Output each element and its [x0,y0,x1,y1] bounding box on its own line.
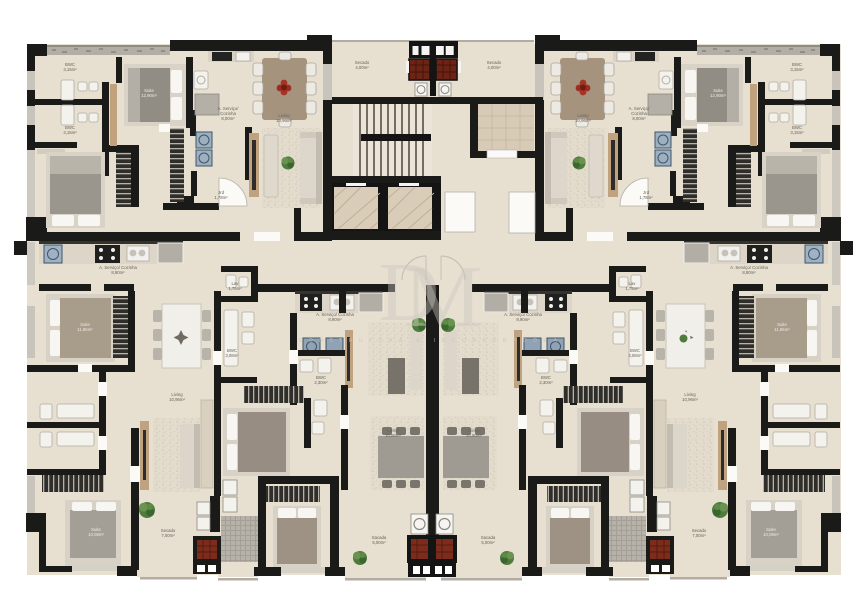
svg-text:11,96m²: 11,96m² [774,327,790,332]
svg-text:10,96m²: 10,96m² [276,118,292,123]
svg-text:5,00m²: 5,00m² [372,540,386,545]
svg-text:3,08m²: 3,08m² [628,353,642,358]
svg-text:10,96m²: 10,96m² [169,397,185,402]
svg-text:4,00m²: 4,00m² [355,65,369,70]
svg-text:10,96m²: 10,96m² [682,397,698,402]
svg-text:12,90m²: 12,90m² [710,93,726,98]
svg-text:8,90m²: 8,90m² [111,270,125,275]
svg-text:3,15m²: 3,15m² [790,130,804,135]
svg-text:3,08m²: 3,08m² [225,353,239,358]
svg-text:8,00m²: 8,00m² [632,116,646,121]
svg-text:10,08m²: 10,08m² [763,532,779,537]
svg-text:M: M [404,249,482,346]
svg-text:5,00m²: 5,00m² [481,540,495,545]
svg-text:8,90m²: 8,90m² [516,317,530,322]
svg-text:10,08m²: 10,08m² [88,532,104,537]
svg-text:8,00m²: 8,00m² [221,116,235,121]
svg-text:10,80m²: 10,80m² [385,433,401,438]
svg-text:10,80m²: 10,80m² [466,433,482,438]
svg-text:4,00m²: 4,00m² [487,65,501,70]
svg-text:12,90m²: 12,90m² [141,93,157,98]
svg-text:2,30m²: 2,30m² [314,380,328,385]
svg-text:CONSTRUTORA E INCORPORADORA: CONSTRUTORA E INCORPORADORA [299,338,564,344]
svg-text:2,30m²: 2,30m² [539,380,553,385]
svg-text:1,75m²: 1,75m² [228,286,242,291]
svg-text:10,96m²: 10,96m² [575,118,591,123]
svg-text:3,15m²: 3,15m² [63,130,77,135]
svg-text:7,00m²: 7,00m² [692,533,706,538]
svg-text:8,90m²: 8,90m² [328,317,342,322]
svg-text:3,15m²: 3,15m² [790,67,804,72]
svg-text:1,78m²: 1,78m² [214,195,228,200]
svg-text:1,78m²: 1,78m² [639,195,653,200]
svg-text:11,96m²: 11,96m² [77,327,93,332]
svg-text:3,15m²: 3,15m² [63,67,77,72]
svg-text:7,00m²: 7,00m² [161,533,175,538]
svg-text:1,75m²: 1,75m² [625,286,639,291]
svg-text:8,90m²: 8,90m² [742,270,756,275]
